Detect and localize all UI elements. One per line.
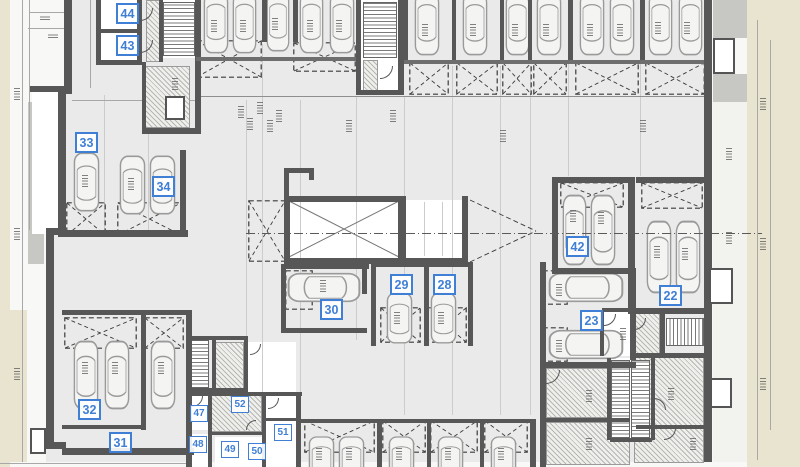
stall-badge-29: 29 xyxy=(390,274,413,295)
wall-segment xyxy=(371,262,473,267)
annotation-text xyxy=(726,148,732,160)
annotation-text xyxy=(682,248,688,260)
annotation-text xyxy=(394,312,400,324)
car xyxy=(150,340,176,410)
annotation-text xyxy=(346,120,352,132)
car xyxy=(329,0,355,54)
window-niche xyxy=(709,268,733,304)
car xyxy=(675,220,701,294)
wall-segment xyxy=(281,264,286,333)
annotation-text xyxy=(48,34,58,38)
annotation-text xyxy=(267,120,273,132)
wall-segment xyxy=(309,168,314,180)
wall-segment xyxy=(186,388,246,392)
floor-plan-canvas: 444333342928304222233231474849505152 xyxy=(0,0,800,467)
wall-segment xyxy=(452,0,456,62)
wall-segment xyxy=(262,0,267,42)
annotation-text xyxy=(498,448,504,460)
annotation-text xyxy=(586,438,592,450)
annotation-text xyxy=(598,212,604,224)
annotation-text xyxy=(316,448,322,460)
wall-segment xyxy=(264,418,298,421)
wall-segment xyxy=(660,310,665,358)
annotation-text xyxy=(655,22,661,34)
wall-segment xyxy=(636,177,710,183)
wall-segment xyxy=(300,419,536,423)
annotation-text xyxy=(617,24,623,36)
stall-badge-47: 47 xyxy=(190,405,208,422)
annotation-text xyxy=(211,20,217,32)
wall-segment xyxy=(356,0,361,95)
annotation-text xyxy=(587,24,593,36)
annotation-text xyxy=(760,378,766,390)
annotation-text xyxy=(470,24,476,36)
wall-segment xyxy=(142,128,201,134)
car xyxy=(590,194,616,266)
annotation-text xyxy=(128,178,134,190)
annotation-text xyxy=(556,340,562,352)
wall-segment xyxy=(344,328,367,333)
wall-segment xyxy=(630,268,636,360)
wall-segment xyxy=(96,29,139,33)
annotation-text xyxy=(240,20,246,32)
wall-segment xyxy=(281,328,347,333)
wall-segment xyxy=(197,0,201,42)
wall-segment xyxy=(284,196,404,202)
wall-segment xyxy=(180,150,186,236)
annotation-text xyxy=(14,228,20,240)
wall-segment xyxy=(62,310,192,315)
wall-segment xyxy=(58,230,188,237)
stall-badge-30: 30 xyxy=(320,299,343,320)
annotation-text xyxy=(684,22,690,34)
window-niche xyxy=(165,96,185,120)
car xyxy=(266,0,290,52)
stall-badge-49: 49 xyxy=(221,441,239,458)
wall-segment xyxy=(356,90,404,95)
annotation-text xyxy=(570,210,576,222)
wall-segment xyxy=(371,262,376,346)
stall-badge-44: 44 xyxy=(116,3,139,24)
annotation-text xyxy=(112,362,118,374)
wall-segment xyxy=(30,86,72,92)
wall-segment xyxy=(244,340,248,394)
annotation-text xyxy=(726,232,732,244)
annotation-text xyxy=(620,328,626,340)
wall-segment xyxy=(293,0,298,42)
wall-segment xyxy=(210,432,264,435)
wall-segment xyxy=(398,196,406,264)
annotation-text xyxy=(438,312,444,324)
wall-segment xyxy=(468,262,473,346)
wall-segment xyxy=(546,418,630,422)
wall-segment xyxy=(480,419,484,467)
wall-segment xyxy=(607,358,611,440)
wall-segment xyxy=(610,438,652,442)
annotation-text xyxy=(500,130,506,142)
stall-badge-43: 43 xyxy=(116,35,139,56)
wall-segment xyxy=(196,57,356,61)
wall-segment xyxy=(186,336,248,340)
annotation-text xyxy=(40,16,50,20)
car xyxy=(104,340,130,410)
wall-segment xyxy=(362,264,367,294)
annotation-text xyxy=(272,18,278,30)
wall-segment xyxy=(96,60,142,65)
annotation-text xyxy=(276,110,282,122)
wall-segment xyxy=(424,262,429,346)
wall-segment xyxy=(142,62,146,132)
wall-segment xyxy=(46,228,54,448)
annotation-text xyxy=(257,102,263,114)
wall-segment xyxy=(62,425,142,429)
annotation-text xyxy=(320,280,326,292)
annotation-text xyxy=(336,20,342,32)
stall-badge-33: 33 xyxy=(75,132,98,153)
annotation-text xyxy=(346,448,352,460)
annotation-text xyxy=(82,362,88,374)
wall-segment xyxy=(377,419,382,467)
annotation-text xyxy=(390,110,396,122)
wall-segment xyxy=(296,394,301,467)
annotation-text xyxy=(586,390,592,402)
wall-segment xyxy=(552,177,558,274)
annotation-text xyxy=(668,388,674,400)
annotation-text xyxy=(445,448,451,460)
wall-segment xyxy=(530,419,536,467)
stall-badge-51: 51 xyxy=(274,424,292,441)
stall-badge-48: 48 xyxy=(189,436,207,453)
axis-centerline xyxy=(246,233,762,234)
annotation-text xyxy=(158,362,164,374)
wall-segment xyxy=(568,0,573,62)
annotation-text xyxy=(307,20,313,32)
wall-segment xyxy=(634,308,710,314)
wall-segment xyxy=(462,196,468,264)
annotation-text xyxy=(14,88,20,100)
wall-segment xyxy=(404,0,408,62)
annotation-text xyxy=(640,120,646,132)
annotation-text xyxy=(82,175,88,187)
annotation-text xyxy=(14,368,20,380)
wall-segment xyxy=(500,0,504,62)
wall-segment xyxy=(552,177,630,183)
wall-segment xyxy=(208,394,212,467)
window-niche xyxy=(30,428,46,454)
annotation-text xyxy=(690,438,696,450)
annotation-text xyxy=(512,24,518,36)
wall-segment xyxy=(427,419,431,467)
wall-segment xyxy=(528,0,532,62)
wall-segment xyxy=(284,196,290,264)
stall-badge-42: 42 xyxy=(566,236,589,257)
stall-badge-34: 34 xyxy=(152,176,175,197)
annotation-text xyxy=(556,284,562,296)
car xyxy=(678,0,703,56)
stall-badge-32: 32 xyxy=(78,399,101,420)
wall-segment xyxy=(212,340,216,394)
wall-segment xyxy=(602,308,632,312)
stall-badge-31: 31 xyxy=(109,432,132,453)
wall-segment xyxy=(159,0,163,62)
car xyxy=(536,0,562,56)
stall-badge-52: 52 xyxy=(231,396,249,413)
wall-segment xyxy=(552,268,634,274)
annotation-text xyxy=(172,78,178,90)
stall-badge-28: 28 xyxy=(433,274,456,295)
wall-segment xyxy=(640,0,645,62)
annotation-text xyxy=(247,118,253,130)
wall-segment xyxy=(64,0,72,94)
stall-badge-23: 23 xyxy=(580,310,603,331)
annotation-text xyxy=(422,24,428,36)
annotation-text xyxy=(760,98,766,110)
annotation-text xyxy=(543,24,549,36)
annotation-text xyxy=(760,238,766,250)
wall-segment xyxy=(540,362,636,368)
annotation-text xyxy=(654,246,660,258)
annotation-text xyxy=(396,448,402,460)
stall-badge-50: 50 xyxy=(248,443,266,460)
wall-segment xyxy=(58,88,66,236)
wall-segment xyxy=(281,264,369,269)
stall-badge-22: 22 xyxy=(659,285,682,306)
annotation-text xyxy=(238,106,244,118)
wall-segment xyxy=(141,310,146,430)
window-niche xyxy=(713,38,735,74)
wall-segment xyxy=(404,60,704,64)
wall-segment xyxy=(634,353,706,358)
window-niche xyxy=(710,378,732,408)
